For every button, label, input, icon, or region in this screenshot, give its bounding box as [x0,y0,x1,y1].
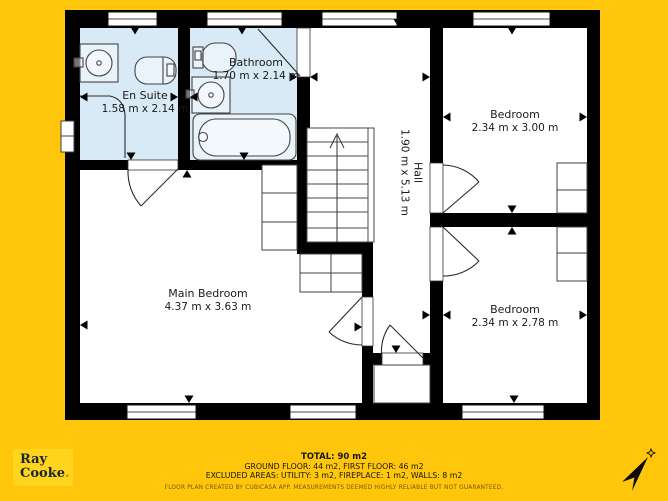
logo-line1: Ray [20,453,73,467]
wardrobe [557,163,587,213]
floor-plan [0,0,668,501]
sink-icon [186,77,230,113]
north-arrow-icon [618,448,662,492]
floor-plan-page: En Suite 1.58 m x 2.14 m Bathroom 1.70 m… [0,0,668,501]
logo-line2: Cooke. [20,467,73,481]
staircase [307,128,374,242]
compass-star-icon [647,449,655,457]
wardrobe [557,227,587,281]
toilet-icon [135,57,176,84]
utility-closet [374,365,430,403]
floor-areas: GROUND FLOOR: 44 m2, FIRST FLOOR: 46 m2 [0,462,668,471]
closet [262,165,297,250]
excluded-areas: EXCLUDED AREAS: UTILITY: 3 m2, FIREPLACE… [0,471,668,480]
footer: TOTAL: 90 m2 GROUND FLOOR: 44 m2, FIRST … [0,452,668,492]
logo-dot: . [65,466,70,481]
ray-cooke-logo: Ray Cooke. [13,449,73,486]
toilet-icon [193,43,236,72]
sink-icon [74,44,118,82]
total-area: TOTAL: 90 m2 [0,452,668,462]
disclaimer: FLOOR PLAN CREATED BY CUBICASA APP. MEAS… [0,485,668,492]
